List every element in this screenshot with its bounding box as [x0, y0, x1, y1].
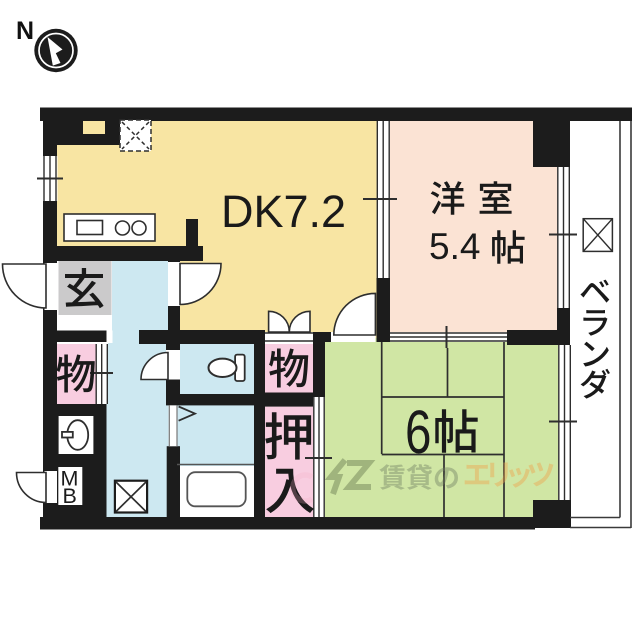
- svg-text:5.4: 5.4: [429, 226, 480, 267]
- svg-text:DK7.2: DK7.2: [221, 186, 346, 237]
- svg-text:B: B: [63, 484, 77, 508]
- svg-text:6: 6: [405, 397, 431, 466]
- svg-text:N: N: [16, 17, 34, 45]
